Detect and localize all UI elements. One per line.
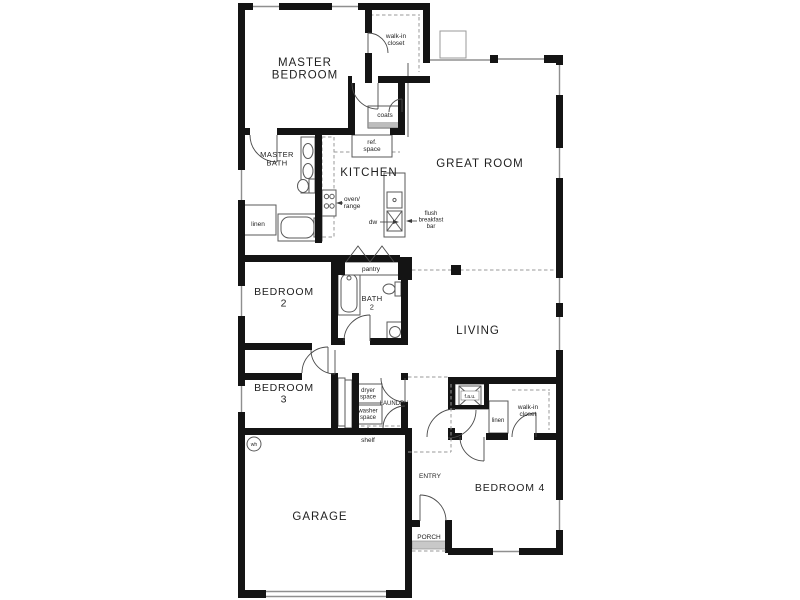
toilet-icon bbox=[383, 282, 401, 296]
label-entry: ENTRY bbox=[419, 473, 442, 480]
window-icon bbox=[556, 148, 563, 178]
kitchen-island bbox=[384, 173, 405, 237]
door-arc-icon bbox=[302, 347, 328, 373]
label-garage: GARAGE bbox=[292, 511, 347, 523]
label-dryer-space: dryerspace bbox=[360, 388, 377, 401]
label-fau: f.a.u. bbox=[464, 394, 475, 400]
label-laundry: LAUNDRY bbox=[380, 401, 409, 407]
door-arc-icon bbox=[381, 378, 405, 402]
label-washer-space: washerspace bbox=[357, 409, 377, 422]
window-icon bbox=[332, 3, 358, 10]
window-icon bbox=[493, 548, 519, 555]
label-living: LIVING bbox=[456, 325, 500, 337]
label-bed4-walkin-closet: walk-incloset bbox=[517, 404, 539, 418]
label-dw: dw bbox=[369, 219, 378, 226]
window-icon bbox=[556, 500, 563, 530]
floor-plan-drawing: MASTERBEDROOM walk-incloset coats MASTER… bbox=[0, 0, 800, 600]
label-bedroom-2: BEDROOM2 bbox=[254, 286, 314, 310]
label-master-bath: MASTERBATH bbox=[260, 150, 294, 167]
label-kitchen: KITCHEN bbox=[340, 167, 397, 179]
porch-step bbox=[412, 541, 446, 549]
label-oven-range: oven/range bbox=[344, 196, 361, 210]
construction-lines bbox=[408, 31, 492, 549]
label-bedroom-4: BEDROOM 4 bbox=[475, 482, 545, 494]
window-icon bbox=[253, 3, 279, 10]
linen-closet-box bbox=[240, 205, 276, 235]
label-linen-hall: linen bbox=[492, 418, 505, 424]
window-icon bbox=[556, 65, 563, 95]
label-great-room: GREAT ROOM bbox=[436, 158, 524, 170]
range-icon bbox=[322, 190, 336, 216]
label-flush-breakfast-bar: flushbreakfastbar bbox=[419, 211, 444, 230]
label-coats: coats bbox=[377, 112, 393, 119]
bed3-closet-doors bbox=[338, 378, 352, 428]
fireplace-niche bbox=[440, 31, 466, 58]
door-arc-icon bbox=[344, 315, 370, 341]
door-arc-icon bbox=[420, 495, 446, 521]
label-porch: PORCH bbox=[417, 534, 441, 541]
window-icon bbox=[498, 55, 544, 63]
toilet-icon bbox=[298, 179, 316, 193]
label-bath-2: BATH2 bbox=[361, 294, 382, 311]
sink-icon bbox=[387, 192, 402, 208]
garage-door-icon bbox=[266, 592, 386, 597]
bathtub-icon bbox=[338, 271, 360, 315]
label-bedroom-3: BEDROOM3 bbox=[254, 382, 314, 406]
window-icon bbox=[238, 386, 245, 412]
window-icon bbox=[238, 286, 245, 316]
label-master-bedroom: MASTERBEDROOM bbox=[272, 57, 338, 82]
window-icon bbox=[556, 278, 563, 303]
label-pantry: pantry bbox=[362, 266, 381, 273]
floor-plan-page: MASTERBEDROOM walk-incloset coats MASTER… bbox=[0, 0, 800, 600]
window-icon bbox=[238, 170, 245, 200]
label-linen-master: linen bbox=[251, 221, 265, 228]
label-wh: wh bbox=[251, 442, 258, 448]
door-arc-icon bbox=[311, 350, 335, 374]
label-master-walkin-closet: walk-incloset bbox=[385, 33, 407, 47]
linen-closet-box bbox=[489, 401, 508, 433]
window-icon bbox=[556, 317, 563, 350]
door-arc-icon bbox=[460, 437, 484, 461]
label-shelf: shelf bbox=[361, 437, 375, 444]
door-arc-icon bbox=[352, 83, 378, 109]
